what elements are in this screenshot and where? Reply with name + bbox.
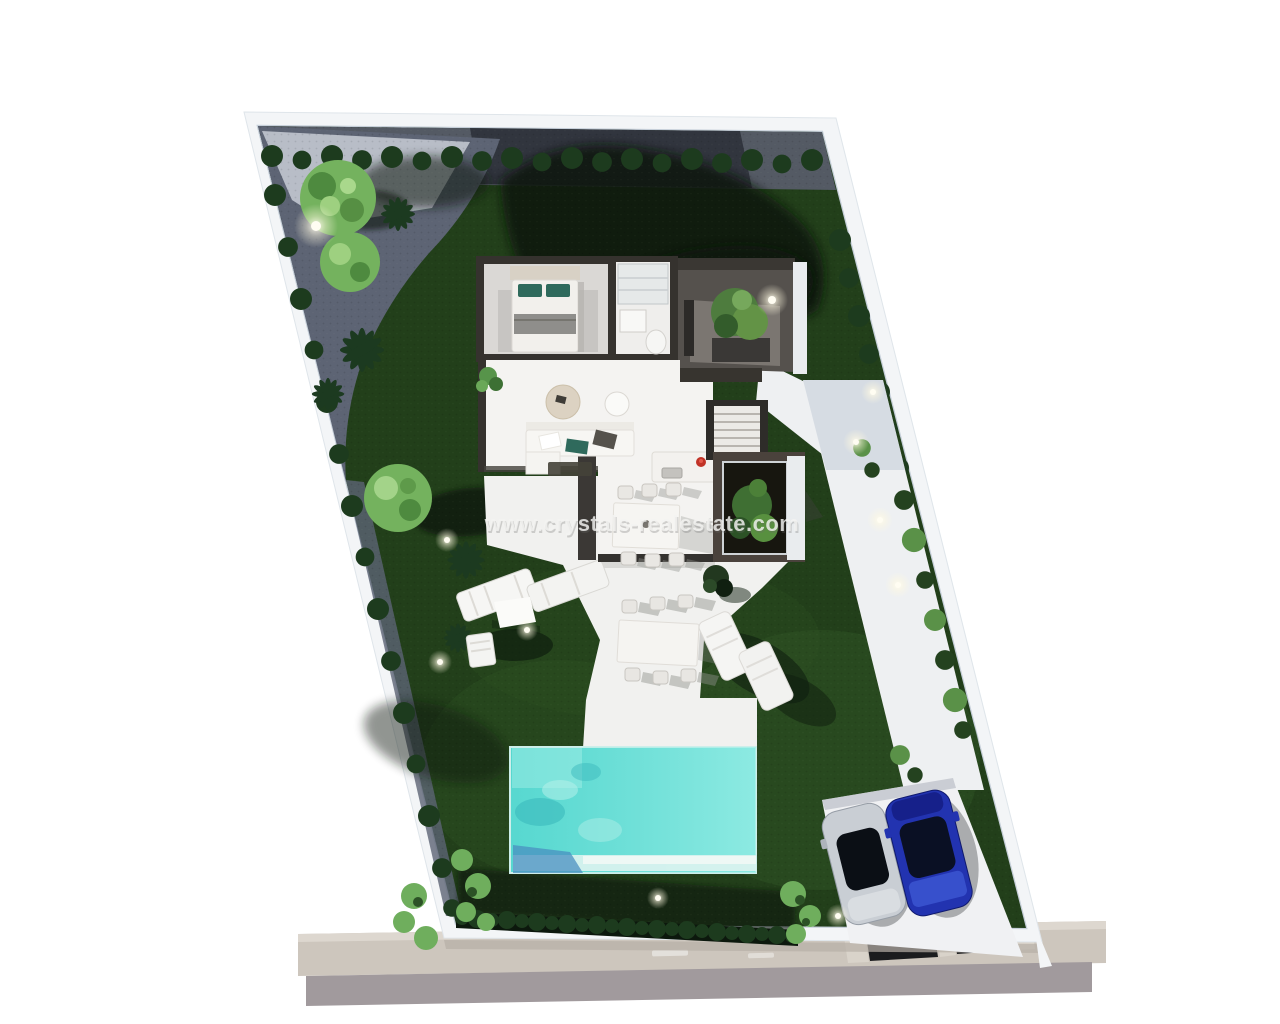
bed-throw (514, 314, 576, 334)
staircase (706, 400, 768, 460)
bedroom (476, 256, 622, 362)
pillow (546, 284, 570, 297)
wall-light (867, 507, 893, 533)
toilet (646, 330, 666, 354)
outdoor-table (617, 620, 699, 666)
wall-light (843, 429, 869, 455)
door-frame (684, 300, 694, 356)
kitchen-sink (662, 468, 682, 478)
side-table (466, 632, 496, 667)
planter (712, 338, 770, 362)
watermark-text: www.crystals-realestate.com (484, 511, 800, 536)
spotlight (647, 887, 669, 909)
entrance-courtyard (678, 258, 807, 374)
interior-patio (713, 452, 805, 562)
coffee-table (548, 462, 592, 476)
wall-light (885, 572, 911, 598)
double-bed (510, 266, 584, 352)
site-plan-svg: www.crystals-realestate.com www.crystals… (0, 0, 1280, 1024)
pool-step-edge (583, 856, 756, 864)
pool-ripple (515, 798, 565, 826)
spotlight (435, 528, 459, 552)
shower (618, 264, 668, 304)
spotlight (516, 619, 538, 641)
wall-light (861, 380, 885, 404)
pool-ripple (578, 818, 622, 842)
pool-ripple (571, 763, 601, 781)
swimming-pool (510, 747, 756, 873)
site-plan-render: www.crystals-realestate.com www.crystals… (0, 0, 1280, 1024)
pillow (518, 284, 542, 297)
hallway-wall (678, 368, 762, 382)
headboard (510, 266, 580, 280)
pool-ripple (542, 780, 578, 800)
pool-ripple (512, 748, 582, 788)
sink (620, 310, 646, 332)
pavement-mark (748, 953, 774, 959)
round-tree (364, 464, 432, 532)
bathroom (608, 256, 678, 360)
spotlight (428, 650, 452, 674)
spotlight (826, 904, 850, 928)
spotlight (294, 204, 338, 248)
pouf (605, 392, 629, 416)
